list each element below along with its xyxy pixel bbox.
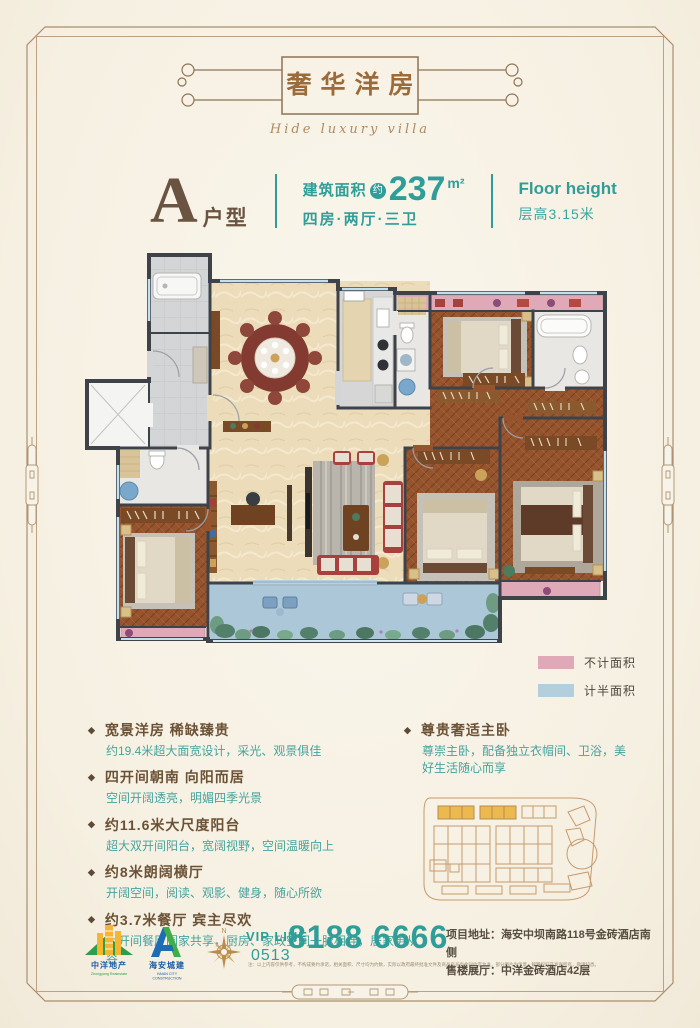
legend: 不计面积 计半面积 (538, 654, 636, 710)
sales-office-address: 售楼展厅：中洋金砖酒店42层 (446, 962, 658, 980)
area-block: 建筑面积 约 237 m² 四房·两厅·三卫 (303, 173, 465, 229)
feature-item: ◆约11.6米大尺度阳台 超大双开间阳台，宽阔视野，空间温暖向上 (88, 815, 418, 855)
feature-heading: 约8米朗阔横厅 (105, 862, 204, 882)
logo-name: 海安城建 (142, 960, 192, 971)
feature-body: 空间开阔透亮，明媚四季光景 (106, 790, 418, 807)
feature-heading: 四开间朝南 向阳而居 (105, 767, 245, 787)
logo-subtext: Zhongyang Realestate (83, 971, 135, 976)
bullet-diamond-icon: ◆ (404, 725, 412, 736)
feature-item: ◆四开间朝南 向阳而居 空间开阔透亮，明媚四季光景 (88, 767, 418, 807)
left-border-ornament (24, 437, 40, 533)
feature-heading: 宽景洋房 稀缺臻贵 (105, 720, 230, 740)
divider (491, 174, 493, 228)
area-label: 建筑面积 (303, 179, 367, 200)
unit-letter: A (150, 168, 198, 234)
floor-height-en: Floor height (519, 179, 617, 199)
project-address: 项目地址：海安中坝南路118号金砖酒店南侧 (446, 926, 658, 962)
legend-swatch-pink (538, 656, 574, 669)
floor-height-cn: 层高3.15米 (519, 204, 617, 224)
logo-subtext: HAIAN CITY CONSTRUCTION (145, 972, 190, 981)
legend-swatch-blue (538, 684, 574, 697)
feature-heading: 约11.6米大尺度阳台 (105, 815, 240, 835)
developer-logo-haian: 海安城建 HAIAN CITY CONSTRUCTION (142, 925, 192, 981)
site-plan-map (412, 790, 632, 908)
divider (275, 174, 277, 228)
bottom-border-ornament (282, 982, 418, 1002)
logo-name: 中洋地产 (80, 960, 138, 971)
feature-item: ◆尊贵奢适主卧 尊崇主卧，配备独立衣帽间、卫浴，美好生活随心而享 (404, 720, 636, 778)
legend-item: 计半面积 (538, 682, 636, 699)
page-title: 奢华洋房 (170, 54, 530, 116)
bullet-diamond-icon: ◆ (88, 867, 96, 878)
feature-heading: 尊贵奢适主卧 (421, 720, 511, 740)
floor-height-block: Floor height 层高3.15米 (519, 179, 617, 224)
page-subtitle: Hide luxury villa (170, 122, 530, 137)
floor-plan (85, 253, 615, 653)
unit-info-row: A 户型 建筑面积 约 237 m² 四房·两厅·三卫 Floor height… (150, 164, 617, 238)
zhongyang-logo-icon (80, 921, 138, 959)
right-border-ornament (660, 437, 676, 533)
legend-label: 不计面积 (584, 654, 636, 671)
bullet-diamond-icon: ◆ (88, 725, 96, 736)
developer-logo-zhongyang: 中洋地产 Zhongyang Realestate (80, 921, 138, 976)
compass-n-label: N (221, 928, 226, 935)
approx-badge: 约 (370, 183, 386, 199)
address-block: 项目地址：海安中坝南路118号金砖酒店南侧 售楼展厅：中洋金砖酒店42层 (446, 926, 658, 980)
feature-body: 开阔空间，阅读、观影、健身，随心所欲 (106, 885, 418, 902)
legend-item: 不计面积 (538, 654, 636, 671)
poster-page: 奢华洋房 Hide luxury villa A 户型 建筑面积 约 237 m… (0, 0, 700, 1028)
feature-body: 超大双开间阳台，宽阔视野，空间温暖向上 (106, 838, 418, 855)
bullet-diamond-icon: ◆ (88, 772, 96, 783)
feature-item: ◆宽景洋房 稀缺臻贵 约19.4米超大面宽设计，采光、观景俱佳 (88, 720, 418, 760)
feature-item: ◆约8米朗阔横厅 开阔空间，阅读、观影、健身，随心所欲 (88, 862, 418, 902)
unit-suffix: 户型 (203, 202, 249, 232)
vip-phone-number: 8188 6666 (288, 919, 448, 956)
haian-logo-icon (147, 925, 187, 959)
area-value: 237 (389, 173, 446, 205)
feature-body: 尊崇主卧，配备独立衣帽间、卫浴，美好生活随心而享 (422, 743, 636, 778)
compass-icon: N (202, 925, 246, 971)
features-right-column: ◆尊贵奢适主卧 尊崇主卧，配备独立衣帽间、卫浴，美好生活随心而享 (404, 720, 636, 785)
area-unit: m² (447, 175, 464, 191)
feature-body: 约19.4米超大面宽设计，采光、观景俱佳 (106, 743, 418, 760)
bullet-diamond-icon: ◆ (88, 819, 96, 830)
room-layout: 四房·两厅·三卫 (303, 208, 465, 229)
legend-label: 计半面积 (584, 682, 636, 699)
